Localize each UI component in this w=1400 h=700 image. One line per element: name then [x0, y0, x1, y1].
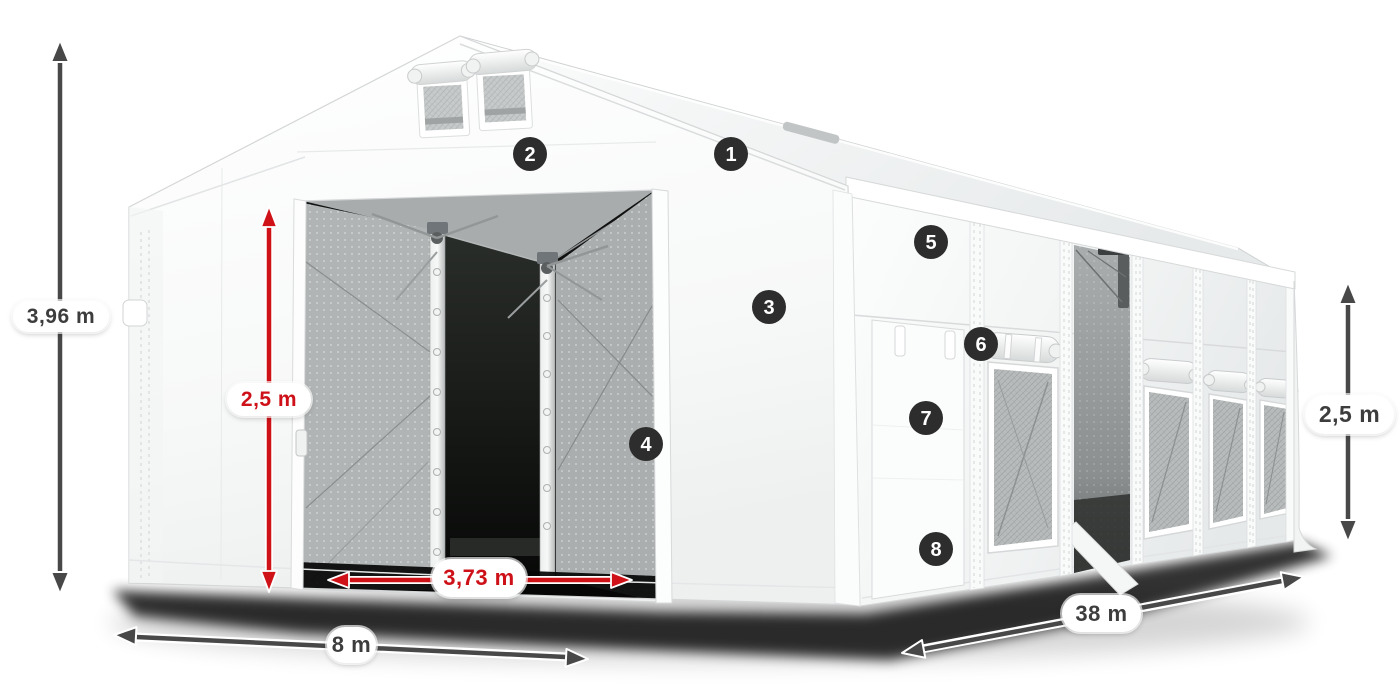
- feature-marker-4: 4: [629, 427, 663, 461]
- tent-diagram-canvas: 1 2 3 4 5 6 7 8 3,9: [0, 0, 1400, 700]
- marker-number: 1: [725, 144, 736, 166]
- feature-marker-8: 8: [919, 532, 953, 566]
- feature-marker-7: 7: [909, 401, 943, 435]
- dim-value: 3,96 m: [27, 305, 95, 329]
- flap-strap: [895, 326, 905, 356]
- dim-value: 2,5 m: [241, 388, 297, 412]
- marker-number: 6: [975, 334, 986, 356]
- corner-pillar-shade: [129, 207, 163, 583]
- feature-marker-6: 6: [964, 327, 998, 361]
- dim-label-front-width: 8 m: [327, 627, 376, 663]
- front-door-opening: [298, 188, 662, 606]
- marker-number: 4: [640, 434, 652, 456]
- marker-number: 7: [920, 408, 931, 430]
- dim-label-side-height: 2,5 m: [1305, 395, 1394, 434]
- feature-marker-3: 3: [752, 290, 786, 324]
- dim-value: 3,73 m: [443, 565, 515, 591]
- feature-marker-2: 2: [513, 137, 547, 171]
- marker-number: 8: [930, 539, 941, 561]
- dim-value: 2,5 m: [1319, 401, 1380, 428]
- dim-label-side-length: 38 m: [1062, 595, 1141, 632]
- dim-label-total-height: 3,96 m: [13, 301, 109, 332]
- interior-center-gap: [434, 228, 558, 590]
- flap-strap: [945, 331, 955, 359]
- dim-label-door-width: 3,73 m: [432, 559, 526, 597]
- marker-number: 5: [925, 232, 936, 254]
- door-handle: [296, 430, 307, 456]
- feature-marker-5: 5: [914, 225, 948, 259]
- dim-value: 8 m: [332, 632, 371, 658]
- corner-buckle: [123, 300, 147, 326]
- dim-value: 38 m: [1075, 601, 1127, 627]
- door-right-edge: [652, 189, 672, 603]
- marker-number: 3: [763, 297, 774, 319]
- interior-left-mesh: [303, 203, 434, 590]
- dim-label-door-height: 2,5 m: [227, 383, 311, 416]
- tent-illustration: 1 2 3 4 5 6 7 8: [0, 0, 1400, 700]
- marker-number: 2: [524, 144, 535, 166]
- feature-marker-1: 1: [714, 137, 748, 171]
